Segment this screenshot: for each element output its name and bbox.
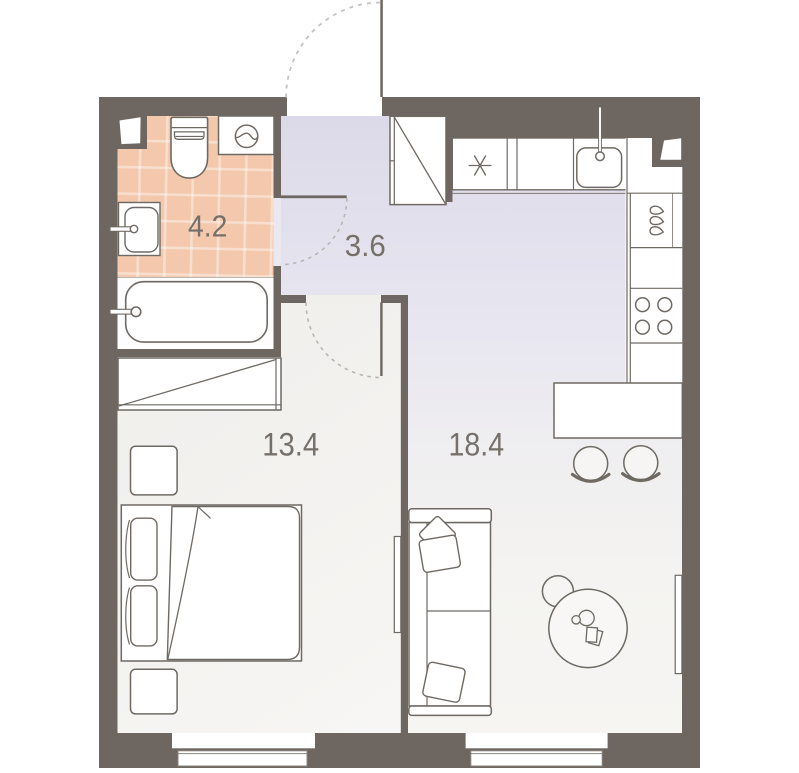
svg-text:13.4: 13.4 [262, 427, 319, 463]
svg-text:18.4: 18.4 [449, 427, 505, 463]
svg-text:3.6: 3.6 [345, 228, 386, 263]
svg-text:4.2: 4.2 [188, 209, 228, 244]
